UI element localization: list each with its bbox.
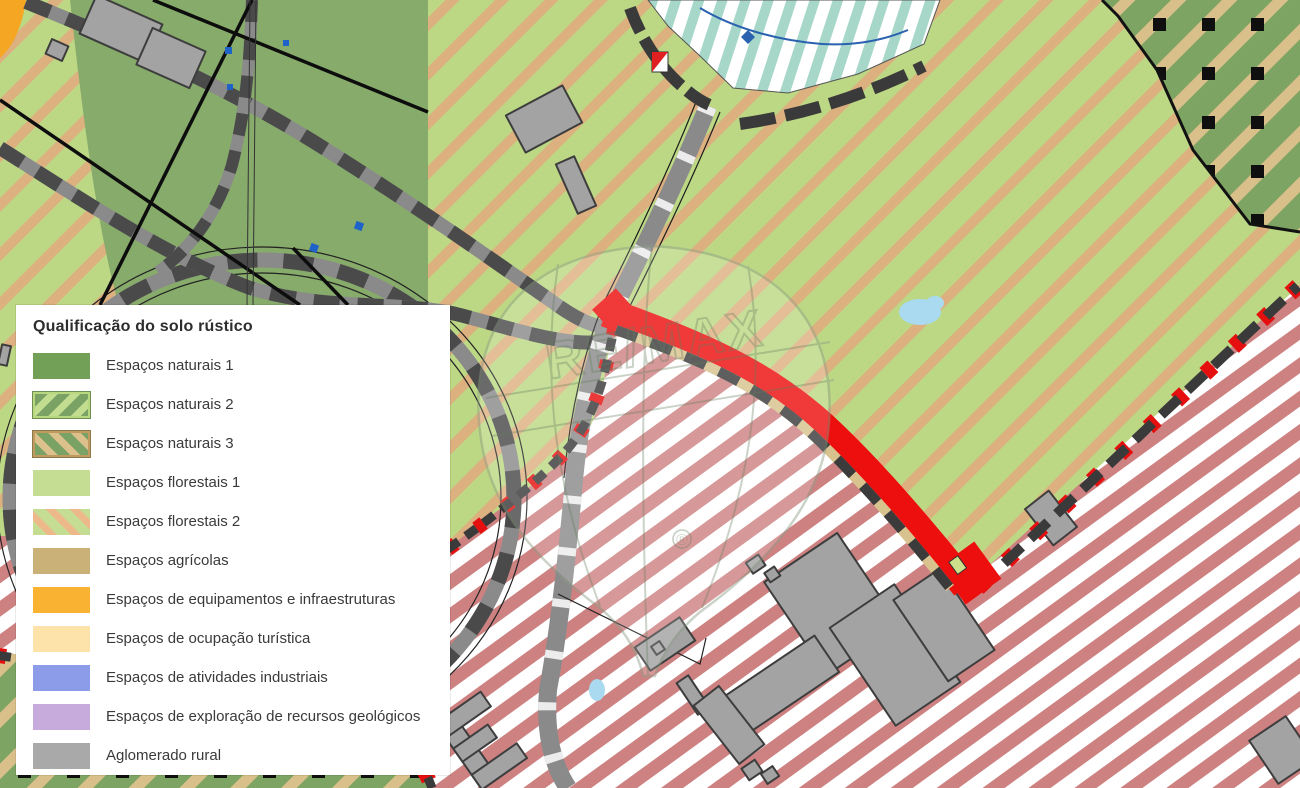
- legend-item-label: Espaços de equipamentos e infraestrutura…: [106, 591, 395, 608]
- legend-item-label: Espaços florestais 2: [106, 513, 240, 530]
- legend-item-label: Espaços naturais 3: [106, 435, 234, 452]
- legend-swatch-aglomerado-rural: [33, 743, 90, 769]
- legend-item-espacos-agricolas: Espaços agrícolas: [33, 541, 450, 580]
- legend-swatch-atividades-industriais: [33, 665, 90, 691]
- legend-item-label: Espaços florestais 1: [106, 474, 240, 491]
- legend-item-espacos-naturais-3: Espaços naturais 3: [33, 424, 450, 463]
- legend-item-recursos-geologicos: Espaços de exploração de recursos geológ…: [33, 697, 450, 736]
- legend-item-ocupacao-turistica: Espaços de ocupação turística: [33, 619, 450, 658]
- remax-registered-mark: ®: [676, 532, 688, 549]
- legend-swatch-espacos-naturais-1: [33, 353, 90, 379]
- legend-title: Qualificação do solo rústico: [33, 318, 450, 336]
- legend-item-aglomerado-rural: Aglomerado rural: [33, 736, 450, 775]
- legend-item-label: Espaços de exploração de recursos geológ…: [106, 708, 420, 725]
- legend-item-label: Aglomerado rural: [106, 747, 221, 764]
- legend-item-atividades-industriais: Espaços de atividades industriais: [33, 658, 450, 697]
- legend-item-equipamentos-infraestruturas: Espaços de equipamentos e infraestrutura…: [33, 580, 450, 619]
- hydrant-mark-1: [225, 47, 232, 54]
- legend-item-espacos-florestais-2: Espaços florestais 2: [33, 502, 450, 541]
- hydrant-mark-3: [283, 40, 289, 46]
- legend-item-label: Espaços de ocupação turística: [106, 630, 310, 647]
- hydrant-mark-2: [227, 84, 233, 90]
- legend-swatch-ocupacao-turistica: [33, 626, 90, 652]
- legend-item-label: Espaços de atividades industriais: [106, 669, 328, 686]
- legend-swatch-equipamentos-infraestruturas: [33, 587, 90, 613]
- legend-item-espacos-florestais-1: Espaços florestais 1: [33, 463, 450, 502]
- legend-item-espacos-naturais-2: Espaços naturais 2: [33, 385, 450, 424]
- legend-swatch-espacos-florestais-2: [33, 509, 90, 535]
- legend-item-label: Espaços agrícolas: [106, 552, 229, 569]
- legend-item-label: Espaços naturais 2: [106, 396, 234, 413]
- legend-item-label: Espaços naturais 1: [106, 357, 234, 374]
- legend-swatch-espacos-naturais-2: [33, 392, 90, 418]
- legend-swatch-espacos-agricolas: [33, 548, 90, 574]
- legend-swatch-recursos-geologicos: [33, 704, 90, 730]
- map-flag-marker: [652, 52, 668, 72]
- zoning-map-page: RE/MAX ® Qualificação do solo rústico Es…: [0, 0, 1300, 788]
- pond-small: [589, 679, 605, 701]
- map-legend-panel: Qualificação do solo rústico Espaços nat…: [16, 305, 450, 775]
- legend-swatch-espacos-naturais-3: [33, 431, 90, 457]
- legend-swatch-espacos-florestais-1: [33, 470, 90, 496]
- legend-item-espacos-naturais-1: Espaços naturais 1: [33, 346, 450, 385]
